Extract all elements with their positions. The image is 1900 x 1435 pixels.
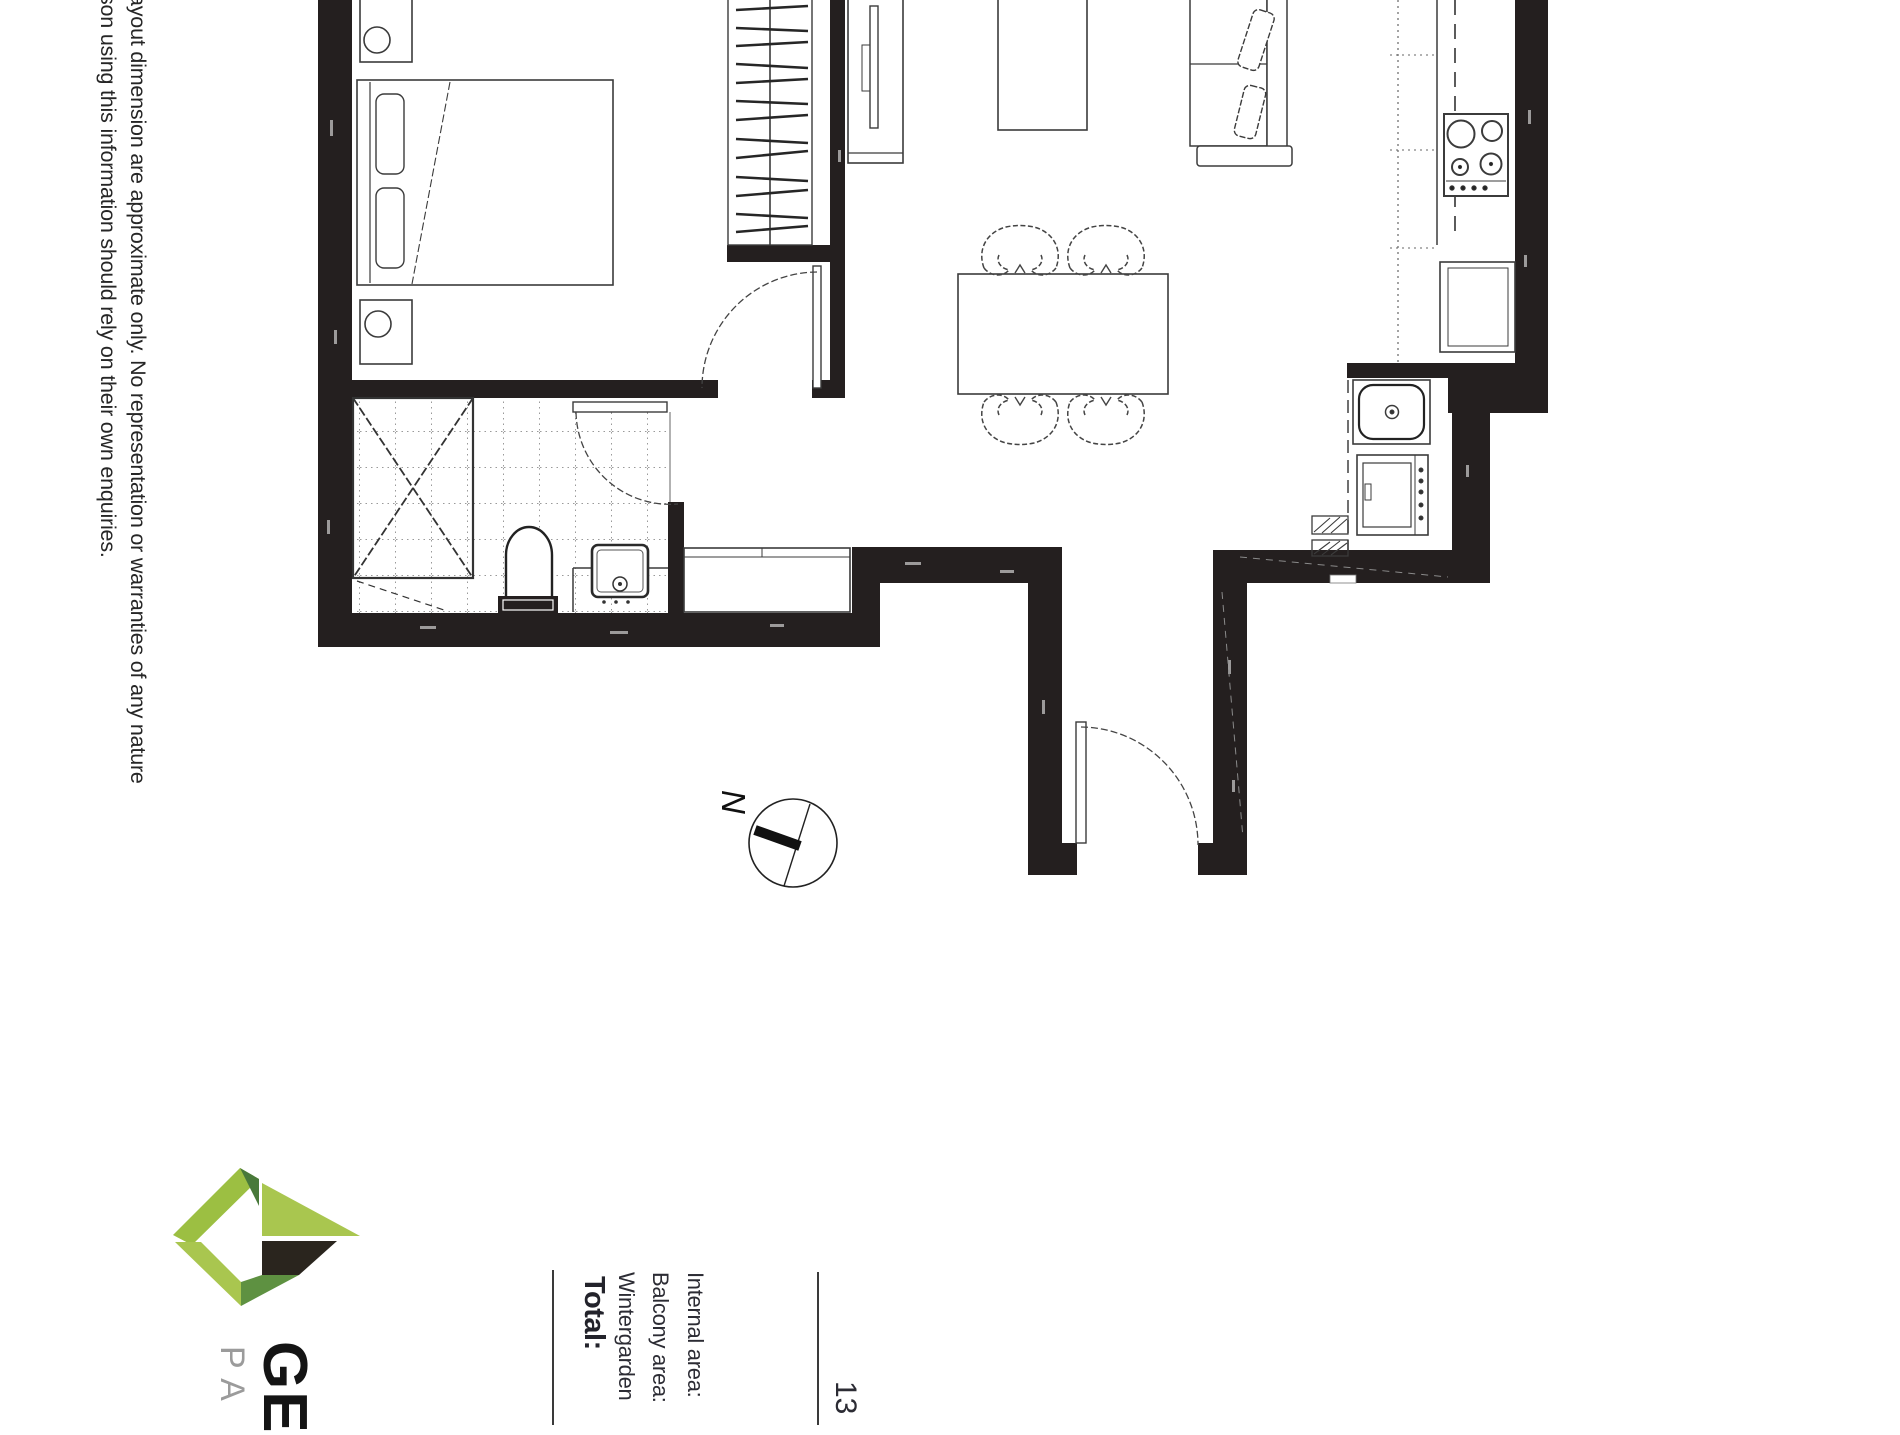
disclaimer-line-2: son using this information should rely o… — [97, 0, 119, 558]
cooktop — [1444, 114, 1508, 196]
logo-primary-text: GE — [253, 1341, 315, 1435]
bedside-table-2 — [360, 300, 412, 364]
internal-area-label: Internal area: — [684, 1272, 706, 1397]
compass-north-label: N — [717, 790, 750, 814]
total-area-label: Total: — [579, 1276, 608, 1350]
bedroom-door — [702, 266, 821, 388]
oven — [1357, 455, 1428, 535]
logo-secondary-text: PA — [215, 1346, 249, 1413]
tv-unit — [848, 0, 903, 163]
bedside-table-1 — [360, 0, 412, 62]
bedroom — [357, 0, 821, 388]
living-dining — [848, 0, 1292, 445]
dining-table — [958, 274, 1168, 394]
disclaimer-line-1: ayout dimension are approximate only. No… — [127, 0, 149, 784]
sofa — [1190, 0, 1292, 166]
under-bench-cabinet — [1440, 262, 1515, 352]
wintergarden-area-label: Wintergarden — [615, 1272, 637, 1400]
entry-door — [1076, 722, 1198, 845]
north-compass-icon — [749, 799, 837, 887]
area-value-fragment: 13 — [830, 1381, 860, 1414]
kitchen-sink — [1353, 380, 1430, 444]
logo-diamond-icon — [173, 1168, 360, 1306]
coffee-table — [998, 0, 1087, 130]
balcony-area-label: Balcony area: — [649, 1272, 671, 1403]
wardrobe — [728, 0, 812, 245]
double-bed — [357, 80, 613, 285]
bathroom — [353, 398, 678, 614]
summary-rule-top — [817, 1272, 819, 1425]
summary-rule-bottom — [552, 1270, 554, 1425]
hall-cabinet — [684, 548, 850, 612]
